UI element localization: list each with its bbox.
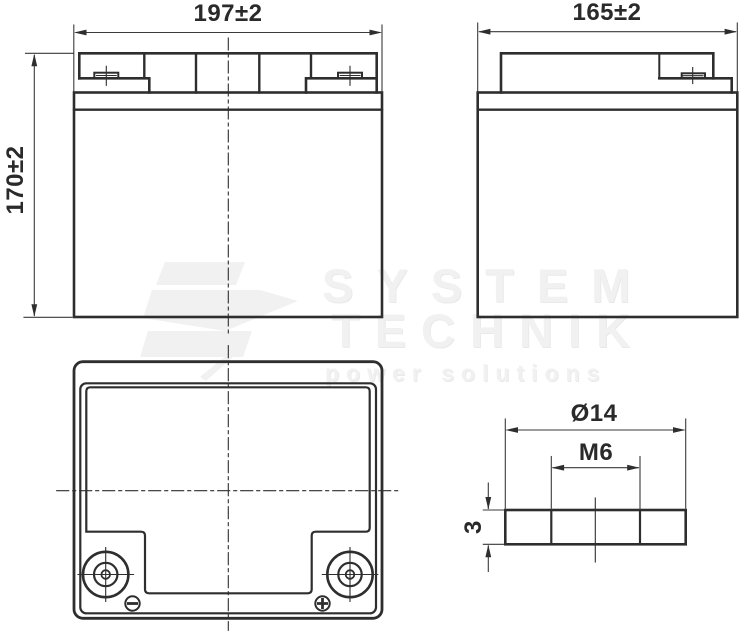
terminal-diameter-label: Ø14	[519, 401, 669, 427]
side-view	[478, 23, 738, 317]
side-depth-dimension	[478, 23, 738, 91]
terminal-crosshair	[78, 548, 134, 602]
front-lid-shelf-left	[79, 78, 149, 92]
arrowhead-left	[506, 427, 519, 433]
top-view	[57, 346, 398, 631]
arrowhead-down	[31, 304, 37, 317]
arrowhead-left	[74, 30, 87, 36]
plus-glyph	[318, 599, 326, 607]
side-body-outline	[478, 93, 738, 318]
front-terminal-left-centermark	[97, 66, 117, 85]
front-terminal-right-centermark	[340, 66, 360, 85]
overall-height-dimension-label: 170±2	[3, 105, 29, 255]
front-width-dimension-label: 197±2	[153, 1, 303, 27]
side-depth-dimension-label: 165±2	[532, 0, 682, 26]
technical-drawing-canvas: SYSTEM TECHNIK power solutions	[0, 0, 755, 637]
front-lid-shelf-right	[306, 78, 377, 92]
drawing-linework	[0, 0, 755, 637]
positive-terminal-icon	[315, 596, 329, 610]
arrowhead-left	[478, 29, 491, 35]
negative-terminal-icon	[125, 596, 139, 610]
front-height-dimension	[24, 53, 73, 317]
arrowhead-right	[370, 30, 383, 36]
side-terminal-centermark	[683, 68, 704, 84]
top-terminal-negative	[78, 548, 134, 602]
arrowhead-up	[31, 54, 37, 67]
terminal-crosshair	[322, 548, 378, 602]
front-view	[24, 25, 382, 333]
arrowhead-right	[725, 29, 738, 35]
front-width-dimension	[74, 25, 382, 91]
side-lid-shelf	[659, 78, 731, 92]
top-terminal-positive	[322, 548, 378, 602]
terminal-thread-label: M6	[521, 440, 671, 466]
arrowhead-right	[673, 427, 686, 433]
terminal-thickness-label: 3	[461, 497, 487, 557]
